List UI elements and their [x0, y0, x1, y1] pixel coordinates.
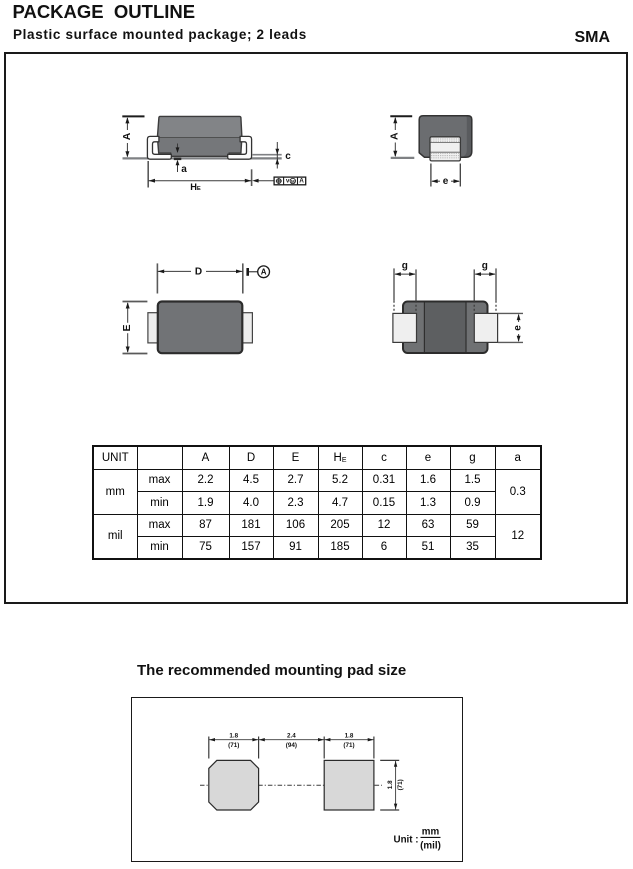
svg-text:A: A [121, 132, 133, 140]
svg-text:(71): (71) [228, 742, 239, 749]
svg-text:1.8: 1.8 [229, 732, 238, 739]
svg-text:e: e [513, 325, 524, 331]
svg-text:Unit :: Unit : [394, 835, 419, 846]
svg-text:c: c [285, 151, 291, 162]
svg-text:A: A [299, 178, 304, 185]
svg-text:e: e [443, 176, 449, 187]
svg-text:(71): (71) [343, 742, 354, 749]
svg-text:2.4: 2.4 [287, 732, 296, 739]
svg-text:v: v [286, 178, 290, 185]
svg-text:(71): (71) [397, 779, 404, 790]
svg-text:a: a [181, 164, 187, 175]
svg-text:E: E [121, 324, 133, 331]
svg-text:A: A [261, 268, 267, 277]
svg-text:D: D [195, 266, 202, 277]
svg-text:M: M [291, 179, 295, 184]
svg-text:HE: HE [190, 182, 201, 192]
svg-text:(mil): (mil) [420, 840, 441, 851]
svg-text:A: A [389, 132, 401, 140]
svg-text:g: g [402, 261, 408, 272]
svg-text:(94): (94) [286, 742, 297, 749]
svg-text:g: g [482, 261, 488, 272]
svg-text:1.8: 1.8 [345, 732, 354, 739]
svg-text:mm: mm [422, 827, 440, 838]
svg-text:1.8: 1.8 [387, 780, 394, 789]
